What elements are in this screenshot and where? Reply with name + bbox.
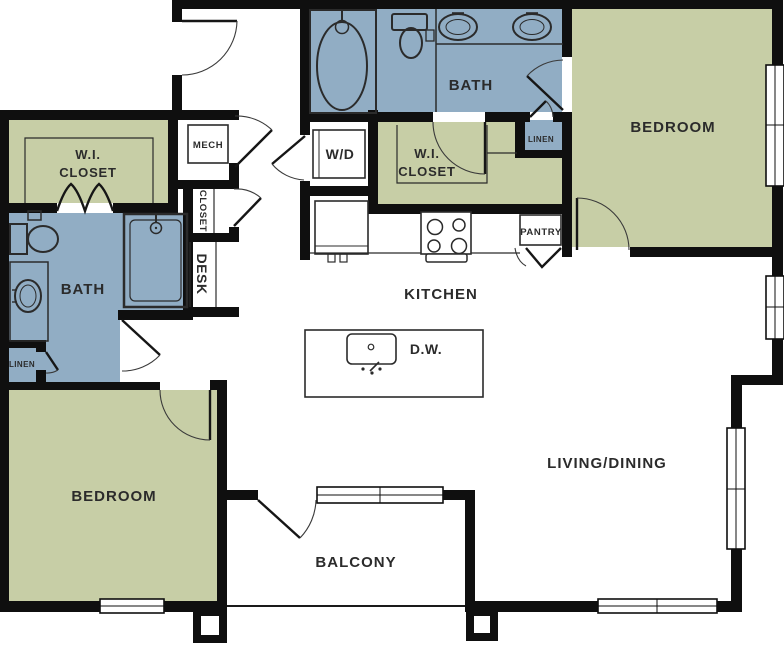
balcony-structure	[193, 606, 498, 643]
wi-closet-mid-fill	[378, 122, 515, 204]
door-closet-hall	[234, 189, 261, 226]
window-living-right-lower	[727, 428, 745, 549]
label-linen-tr: LINEN	[528, 135, 554, 144]
label-desk-vertical: DESK	[194, 254, 210, 295]
window-living-right-upper	[766, 276, 784, 339]
door-balcony	[258, 500, 316, 538]
stove-icon	[421, 212, 471, 262]
label-bedroom-bottom-left: BEDROOM	[71, 488, 156, 505]
label-pantry: PANTRY	[520, 227, 562, 238]
label-balcony: BALCONY	[315, 554, 396, 571]
window-balcony-slider	[317, 487, 443, 503]
door-bath-left	[122, 320, 160, 371]
bath-left-fill	[9, 213, 184, 320]
label-bath-top: BATH	[449, 77, 494, 94]
label-wic-left-2: CLOSET	[59, 165, 117, 180]
kitchen-island	[305, 330, 483, 397]
label-linen-left: LINEN	[9, 360, 35, 369]
wi-closet-mid-fill-2	[515, 158, 562, 204]
label-bath-left: BATH	[61, 281, 106, 298]
door-washer-dryer	[272, 136, 305, 180]
window-bedroom-tr	[766, 65, 784, 186]
label-living-dining: LIVING/DINING	[547, 455, 667, 472]
floorplan-canvas: BATH BEDROOM W.I. CLOSET W.I. CLOSET MEC…	[0, 0, 784, 645]
label-kitchen: KITCHEN	[404, 286, 478, 303]
label-wic-mid-2: CLOSET	[398, 164, 456, 179]
label-wd: W/D	[326, 146, 355, 162]
label-dw: D.W.	[410, 341, 442, 357]
door-entry	[182, 21, 237, 75]
label-mech: MECH	[193, 140, 223, 151]
label-closet-vertical: CLOSET	[197, 190, 208, 232]
window-living-bottom	[598, 599, 717, 613]
floorplan-svg: BATH BEDROOM W.I. CLOSET W.I. CLOSET MEC…	[0, 0, 784, 645]
label-wic-left-1: W.I.	[75, 147, 101, 162]
label-bedroom-top-right: BEDROOM	[630, 119, 715, 136]
door-mech	[235, 116, 272, 167]
label-wic-mid-1: W.I.	[414, 146, 440, 161]
door-pantry	[515, 248, 561, 267]
window-bedroom-bl	[100, 599, 164, 613]
bath-left-fill-2	[9, 320, 120, 382]
